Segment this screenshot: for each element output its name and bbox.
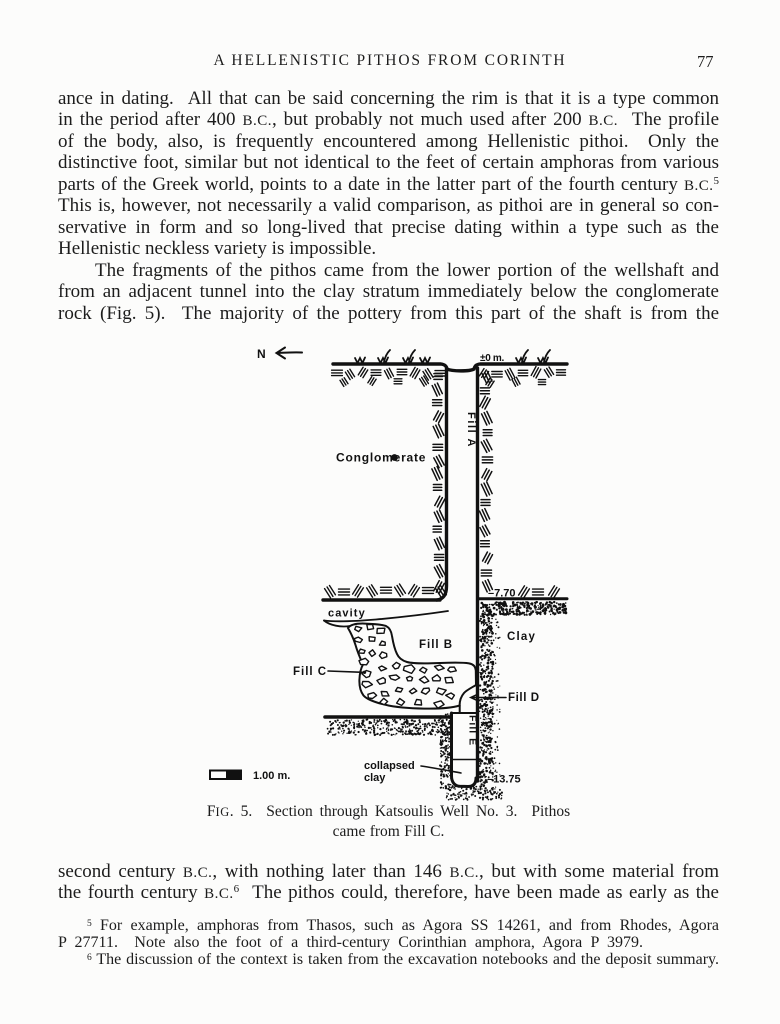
svg-text:N: N bbox=[257, 347, 266, 361]
svg-text:Clay: Clay bbox=[507, 631, 536, 643]
svg-text:Fill E: Fill E bbox=[467, 715, 479, 746]
svg-text:Fill C: Fill C bbox=[293, 666, 327, 678]
svg-text:clay: clay bbox=[364, 772, 386, 784]
svg-text:1.00 m.: 1.00 m. bbox=[253, 770, 290, 782]
svg-text:collapsed: collapsed bbox=[364, 760, 415, 772]
svg-text:–13.75: –13.75 bbox=[487, 774, 521, 786]
svg-text:Fill A: Fill A bbox=[465, 412, 477, 448]
svg-text:Conglomerate: Conglomerate bbox=[336, 451, 426, 465]
svg-text:Fill D: Fill D bbox=[508, 692, 540, 704]
svg-text:Fill B: Fill B bbox=[419, 639, 453, 651]
svg-text:cavity: cavity bbox=[328, 608, 366, 620]
svg-text:–7.70: –7.70 bbox=[488, 588, 516, 600]
